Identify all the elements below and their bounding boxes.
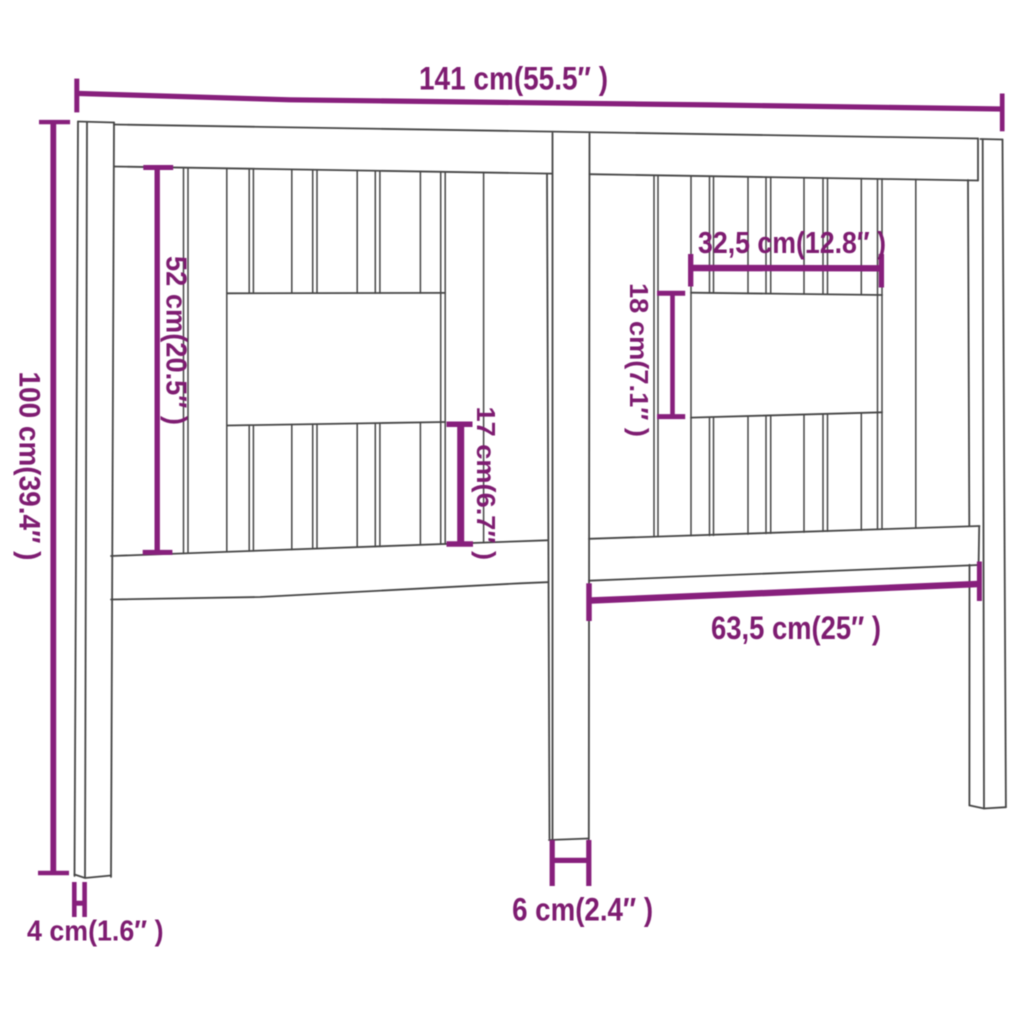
svg-text:32,5 cm(12.8″ ): 32,5 cm(12.8″ ) [698,225,886,260]
svg-text:100 cm(39.4″ ): 100 cm(39.4″ ) [13,372,46,561]
svg-text:18 cm(7.1″ ): 18 cm(7.1″ ) [624,283,654,437]
svg-text:141 cm(55.5″ ): 141 cm(55.5″ ) [419,60,608,96]
svg-text:63,5 cm(25″ ): 63,5 cm(25″ ) [711,610,881,646]
svg-text:6 cm(2.4″ ): 6 cm(2.4″ ) [512,892,653,928]
svg-text:52 cm(20.5″ ): 52 cm(20.5″ ) [160,256,192,425]
svg-text:4 cm(1.6″ ): 4 cm(1.6″ ) [27,916,164,948]
svg-text:17 cm(6.7″ ): 17 cm(6.7″ ) [471,407,501,561]
